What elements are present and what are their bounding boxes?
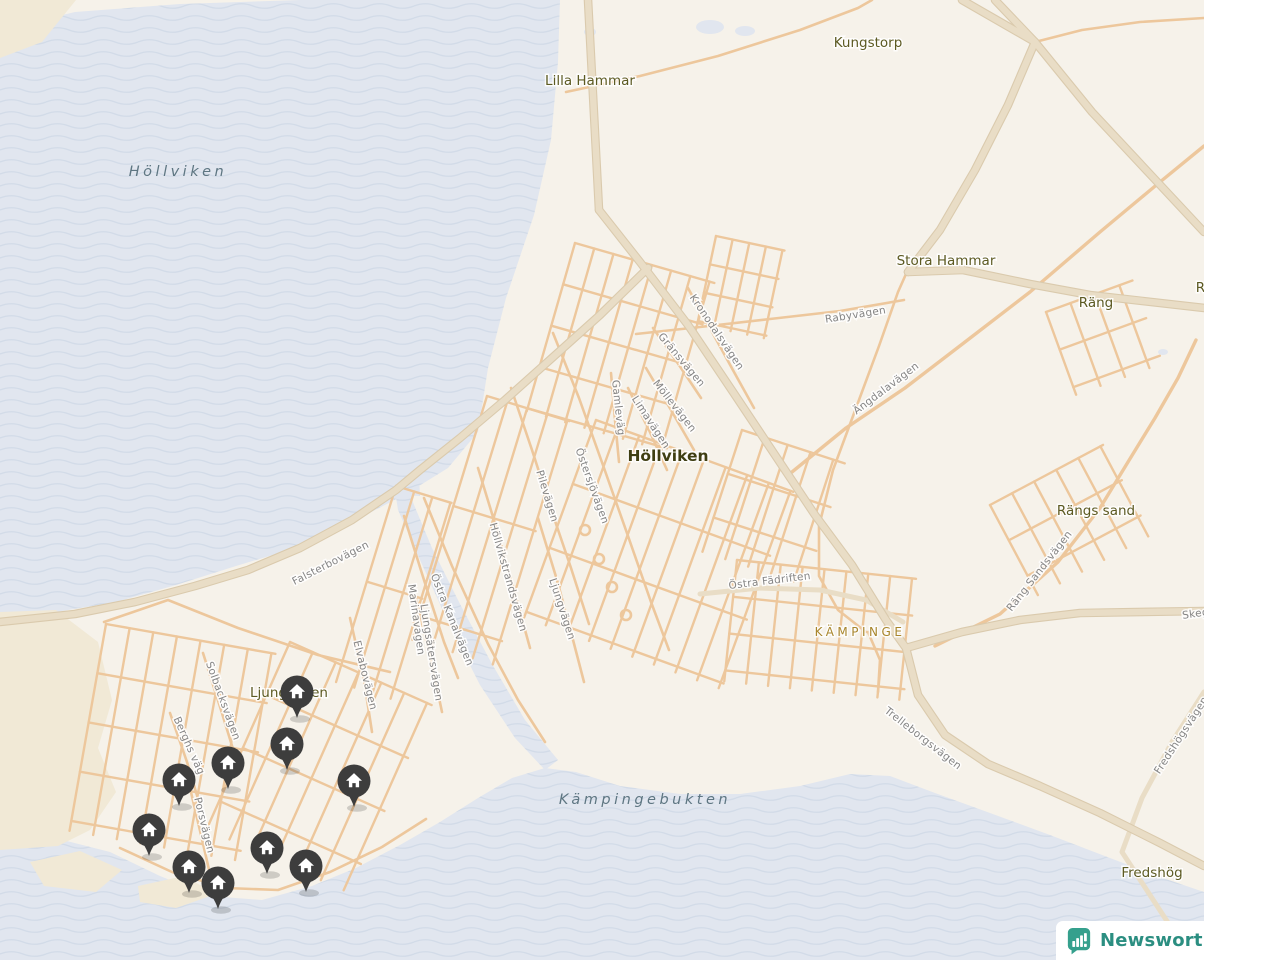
- pin-shadow: [290, 715, 310, 723]
- pond: [735, 26, 755, 36]
- water-label: Höllviken: [129, 164, 227, 180]
- pond: [696, 20, 724, 34]
- place-label: Räng: [1196, 280, 1204, 296]
- district-label: KÄMPINGE: [815, 624, 906, 639]
- pin-shadow: [299, 889, 319, 897]
- pin-shadow: [347, 804, 367, 812]
- town-label: Höllviken: [627, 447, 708, 465]
- pond: [1158, 349, 1168, 355]
- pin-shadow: [221, 786, 241, 794]
- pin-shadow: [182, 890, 202, 898]
- pin-shadow: [172, 803, 192, 811]
- place-label: Kungstorp: [834, 35, 903, 51]
- place-label: Stora Hammar: [897, 253, 996, 269]
- place-label: Fredshög: [1121, 865, 1182, 881]
- newsworthy-icon: [1066, 926, 1092, 955]
- pin-shadow: [260, 871, 280, 879]
- place-label: Lilla Hammar: [545, 73, 635, 89]
- pin-shadow: [280, 767, 300, 775]
- pin-shadow: [211, 906, 231, 914]
- map-stage: RabyvägenKronodalsvägenGränsvägenMöllevä…: [0, 0, 1280, 960]
- map[interactable]: RabyvägenKronodalsvägenGränsvägenMöllevä…: [0, 0, 1204, 960]
- place-label: Räng: [1079, 295, 1113, 311]
- right-whitespace: [1204, 0, 1280, 960]
- pin-shadow: [142, 853, 162, 861]
- water-label: Kämpingebukten: [559, 792, 731, 808]
- sand-area: [0, 610, 116, 850]
- newsworthy-logo[interactable]: Newsworthy: [1056, 921, 1204, 960]
- map-canvas[interactable]: RabyvägenKronodalsvägenGränsvägenMöllevä…: [0, 0, 1204, 960]
- newsworthy-wordmark: Newsworthy: [1100, 930, 1204, 951]
- place-label: Rängs sand: [1057, 503, 1135, 519]
